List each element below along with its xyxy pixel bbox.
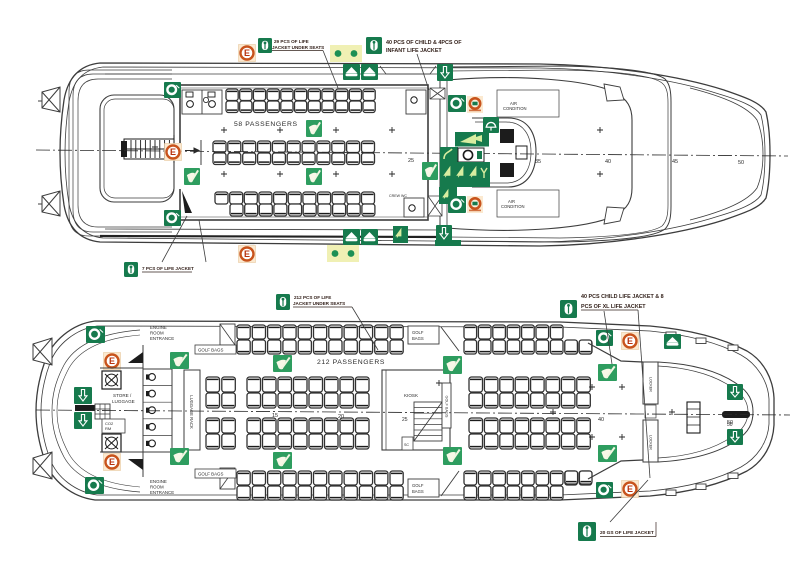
svg-text:40: 40 <box>605 159 611 165</box>
svg-text:ENGINE: ENGINE <box>150 479 167 484</box>
svg-text:212 PCS OF LIFE: 212 PCS OF LIFE <box>294 295 331 300</box>
svg-text:45: 45 <box>672 159 678 165</box>
svg-text:7 PCS OF LIFE JACKET: 7 PCS OF LIFE JACKET <box>142 266 194 271</box>
svg-text:50: 50 <box>727 420 733 426</box>
svg-text:ROOM: ROOM <box>150 331 164 336</box>
svg-text:20: 20 <box>338 414 344 420</box>
svg-text:ENTRANCE: ENTRANCE <box>150 336 174 341</box>
svg-text:GOLF BAGS: GOLF BAGS <box>198 472 223 477</box>
svg-text:40: 40 <box>598 417 604 423</box>
svg-text:ROOM: ROOM <box>150 485 164 490</box>
svg-text:GOLF BAGS: GOLF BAGS <box>198 348 223 353</box>
svg-text:BAGS: BAGS <box>412 336 424 341</box>
svg-text:25: 25 <box>408 158 414 164</box>
svg-text:E: E <box>627 336 633 346</box>
svg-text:CONDITION: CONDITION <box>501 204 525 209</box>
svg-text:PCS OF XL LIFE JACKET: PCS OF XL LIFE JACKET <box>581 304 646 310</box>
svg-text:CREW WC: CREW WC <box>389 194 407 198</box>
svg-text:40 PCS OF CHILD & 4PCS OF: 40 PCS OF CHILD & 4PCS OF <box>386 40 462 46</box>
svg-text:GOLF: GOLF <box>412 483 424 488</box>
svg-text:ENTRANCE: ENTRANCE <box>150 490 174 495</box>
svg-text:E: E <box>170 147 176 157</box>
svg-text:15: 15 <box>272 413 278 419</box>
svg-text:29 PCS OF LIFE: 29 PCS OF LIFE <box>274 39 309 44</box>
svg-text:RM: RM <box>105 426 111 431</box>
svg-text:LOCKER: LOCKER <box>649 377 653 392</box>
svg-text:25: 25 <box>402 417 408 423</box>
svg-text:E: E <box>244 48 250 58</box>
svg-text:E: E <box>109 457 115 467</box>
svg-text:BAGS: BAGS <box>412 489 424 494</box>
svg-text:20 GS OF LIFE JACKET: 20 GS OF LIFE JACKET <box>600 530 654 536</box>
svg-text:JACKET UNDER SEATS: JACKET UNDER SEATS <box>293 301 345 306</box>
svg-text:E: E <box>109 356 115 366</box>
svg-text:GOLF: GOLF <box>412 330 424 335</box>
svg-text:JACKET UNDER SEATS: JACKET UNDER SEATS <box>272 45 324 50</box>
svg-text:KIOSK: KIOSK <box>404 393 419 398</box>
svg-text:STORE /: STORE / <box>113 393 132 398</box>
svg-text:58 PASSENGERS: 58 PASSENGERS <box>234 121 298 128</box>
svg-text:50: 50 <box>738 160 744 166</box>
svg-text:E: E <box>627 484 633 494</box>
svg-text:212 PASSENGERS: 212 PASSENGERS <box>317 359 385 366</box>
svg-text:SC: SC <box>404 443 409 447</box>
svg-text:GOLF BAGS: GOLF BAGS <box>445 396 449 418</box>
svg-text:LOCKER: LOCKER <box>649 435 653 450</box>
svg-text:INFANT LIFE JACKET: INFANT LIFE JACKET <box>386 48 442 54</box>
svg-text:CONDITION: CONDITION <box>503 106 527 111</box>
svg-text:LUGGAGE: LUGGAGE <box>112 399 135 404</box>
svg-text:40 PCS CHILD LIFE JACKET & 8: 40 PCS CHILD LIFE JACKET & 8 <box>581 294 664 300</box>
svg-text:E: E <box>244 249 250 259</box>
svg-text:ENGINE: ENGINE <box>150 325 167 330</box>
svg-text:LUGGAGE RACK: LUGGAGE RACK <box>189 395 194 429</box>
